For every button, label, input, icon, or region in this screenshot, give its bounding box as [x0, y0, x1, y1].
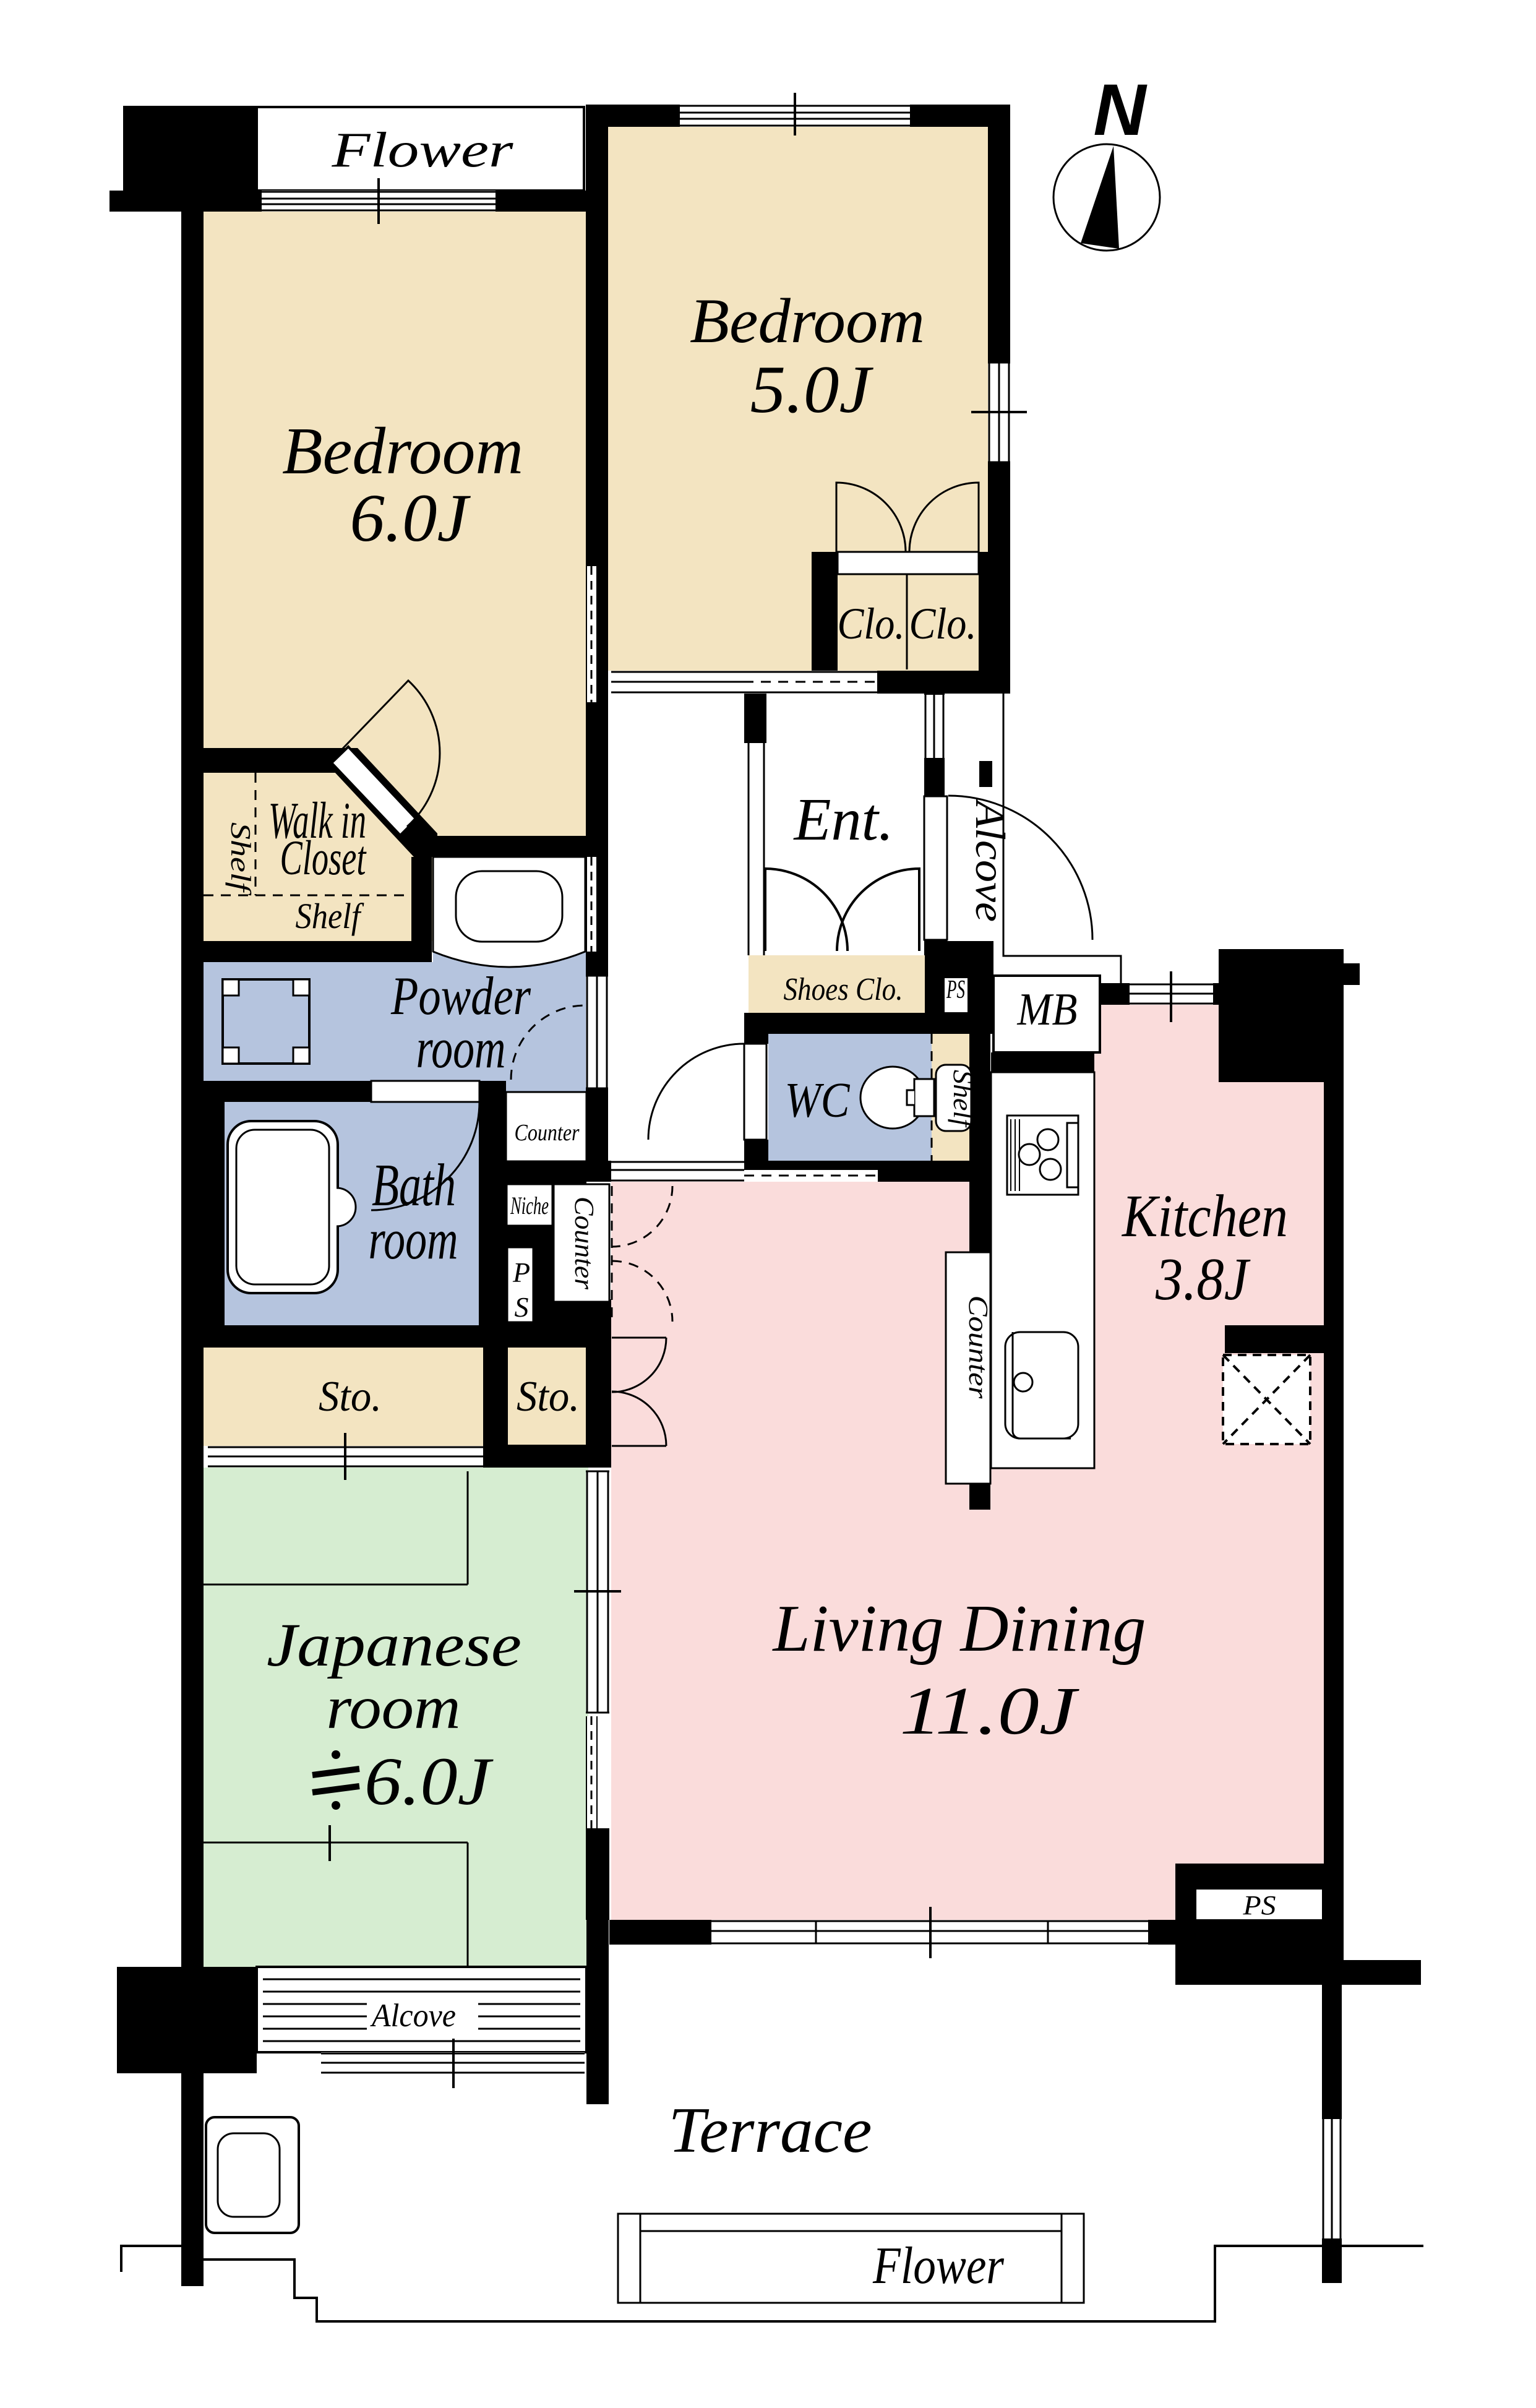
svg-text:6.0J: 6.0J: [364, 1744, 494, 1819]
svg-text:Terrace: Terrace: [669, 2094, 872, 2166]
svg-text:PS: PS: [1242, 1890, 1276, 1920]
svg-text:Ent.: Ent.: [792, 786, 893, 853]
svg-text:Flower: Flower: [872, 2237, 1005, 2295]
svg-text:Japanese: Japanese: [267, 1610, 521, 1679]
svg-text:Closet: Closet: [280, 832, 367, 885]
svg-text:Shelf: Shelf: [296, 896, 364, 936]
svg-text:MB: MB: [1017, 984, 1078, 1035]
svg-text:Flower: Flower: [331, 123, 513, 178]
svg-text:Alcove: Alcove: [967, 798, 1014, 922]
svg-text:PS: PS: [946, 976, 965, 1004]
svg-text:Clo.: Clo.: [838, 599, 905, 648]
svg-text:Sto.: Sto.: [517, 1373, 580, 1421]
svg-text:Clo.: Clo.: [909, 599, 977, 648]
svg-text:Shelf: Shelf: [225, 822, 257, 897]
svg-text:room: room: [327, 1673, 461, 1742]
svg-text:S: S: [515, 1291, 529, 1323]
svg-text:P: P: [512, 1257, 530, 1288]
svg-text:Sto.: Sto.: [319, 1373, 382, 1421]
svg-text:Living Dining: Living Dining: [772, 1592, 1146, 1666]
svg-text:Counter: Counter: [569, 1197, 599, 1290]
svg-text:Bedroom: Bedroom: [282, 415, 523, 488]
svg-text:5.0J: 5.0J: [750, 352, 874, 427]
svg-text:Shoes Clo.: Shoes Clo.: [784, 972, 903, 1007]
svg-text:Counter: Counter: [963, 1296, 993, 1400]
svg-text:room: room: [369, 1208, 458, 1271]
svg-text:3.8J: 3.8J: [1155, 1246, 1251, 1312]
svg-text:N: N: [1093, 69, 1148, 151]
svg-text:Bedroom: Bedroom: [690, 286, 925, 356]
svg-text:Kitchen: Kitchen: [1121, 1183, 1288, 1250]
svg-text:Niche: Niche: [510, 1192, 549, 1219]
svg-text:11.0J: 11.0J: [900, 1673, 1080, 1748]
svg-text:Alcove: Alcove: [370, 1998, 456, 2034]
svg-text:room: room: [416, 1017, 506, 1080]
svg-text:Shelf: Shelf: [948, 1070, 978, 1130]
svg-text:Counter: Counter: [515, 1120, 580, 1146]
svg-text:WC: WC: [785, 1073, 851, 1128]
svg-text:6.0J: 6.0J: [350, 480, 471, 556]
